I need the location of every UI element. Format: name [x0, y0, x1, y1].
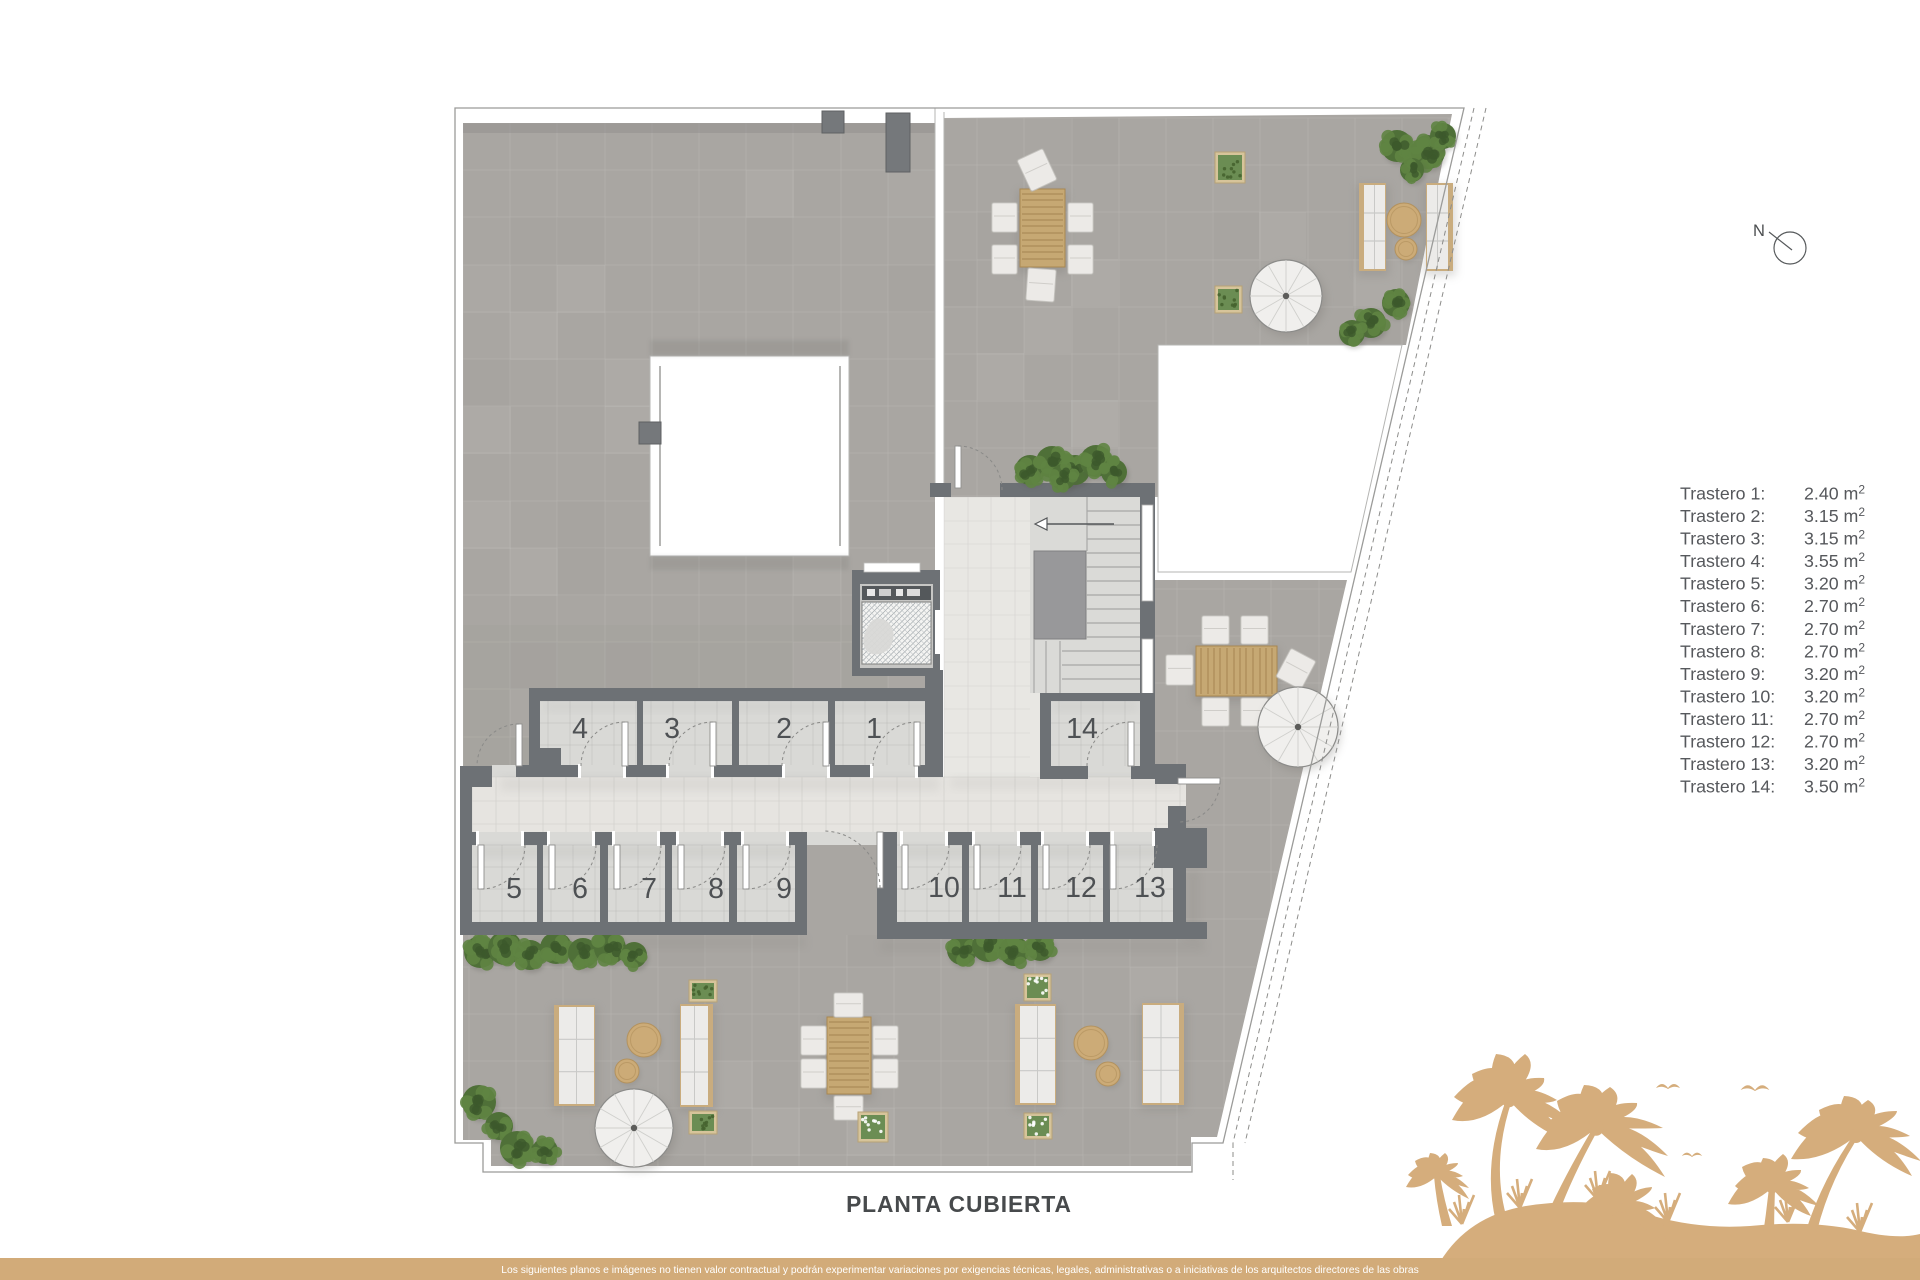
svg-text:2.70 m2: 2.70 m2 — [1804, 618, 1865, 639]
svg-text:3.20 m2: 3.20 m2 — [1804, 573, 1865, 594]
svg-text:3.15 m2: 3.15 m2 — [1804, 528, 1865, 549]
svg-text:2.40 m2: 2.40 m2 — [1804, 483, 1865, 504]
svg-text:Trastero 14:: Trastero 14: — [1680, 777, 1775, 797]
svg-text:Trastero 9:: Trastero 9: — [1680, 664, 1765, 684]
svg-text:2: 2 — [776, 713, 792, 745]
svg-text:N: N — [1753, 222, 1765, 240]
svg-text:Trastero 11:: Trastero 11: — [1680, 709, 1774, 729]
svg-text:3.20 m2: 3.20 m2 — [1804, 753, 1865, 774]
svg-text:Trastero 4:: Trastero 4: — [1680, 551, 1765, 571]
svg-text:Trastero 6:: Trastero 6: — [1680, 596, 1765, 616]
svg-text:PLANTA CUBIERTA: PLANTA CUBIERTA — [846, 1191, 1072, 1217]
svg-text:11: 11 — [997, 872, 1027, 904]
svg-text:Trastero 12:: Trastero 12: — [1680, 732, 1775, 752]
svg-text:Trastero 3:: Trastero 3: — [1680, 529, 1765, 549]
svg-text:2.70 m2: 2.70 m2 — [1804, 595, 1865, 616]
svg-text:Trastero 7:: Trastero 7: — [1680, 619, 1765, 639]
svg-text:2.70 m2: 2.70 m2 — [1804, 731, 1865, 752]
svg-text:12: 12 — [1065, 872, 1097, 904]
svg-text:Trastero 1:: Trastero 1: — [1680, 484, 1765, 504]
svg-text:13: 13 — [1134, 872, 1166, 904]
svg-text:7: 7 — [641, 873, 657, 905]
svg-text:Trastero 8:: Trastero 8: — [1680, 641, 1765, 661]
svg-text:3.20 m2: 3.20 m2 — [1804, 663, 1865, 684]
svg-text:3.15 m2: 3.15 m2 — [1804, 505, 1865, 526]
svg-text:3: 3 — [664, 713, 680, 745]
svg-text:5: 5 — [506, 873, 522, 905]
svg-text:10: 10 — [928, 872, 960, 904]
svg-text:Trastero 10:: Trastero 10: — [1680, 687, 1775, 707]
svg-text:1: 1 — [866, 713, 882, 745]
svg-text:6: 6 — [572, 873, 588, 905]
svg-text:Los siguientes planos e imágen: Los siguientes planos e imágenes no tien… — [501, 1265, 1419, 1276]
svg-text:Trastero 13:: Trastero 13: — [1680, 754, 1775, 774]
svg-text:2.70 m2: 2.70 m2 — [1804, 708, 1865, 729]
svg-text:4: 4 — [572, 713, 588, 745]
svg-text:3.55 m2: 3.55 m2 — [1804, 550, 1865, 571]
svg-text:Trastero 5:: Trastero 5: — [1680, 574, 1765, 594]
svg-text:9: 9 — [776, 873, 792, 905]
svg-text:8: 8 — [708, 873, 724, 905]
svg-text:14: 14 — [1066, 713, 1098, 745]
svg-text:Trastero 2:: Trastero 2: — [1680, 506, 1765, 526]
svg-text:3.50 m2: 3.50 m2 — [1804, 776, 1865, 797]
svg-text:2.70 m2: 2.70 m2 — [1804, 640, 1865, 661]
svg-text:3.20 m2: 3.20 m2 — [1804, 686, 1865, 707]
